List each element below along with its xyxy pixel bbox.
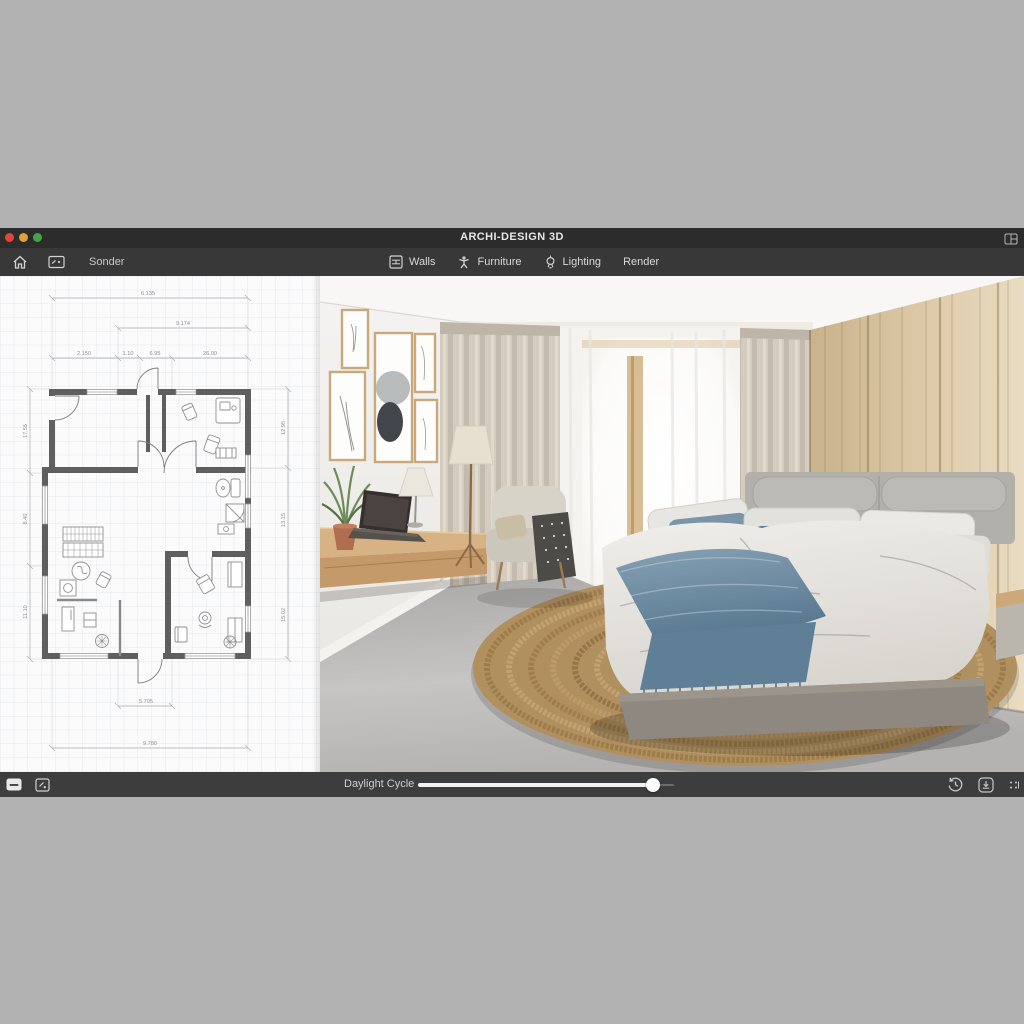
- daylight-slider[interactable]: [418, 772, 674, 797]
- project-icon[interactable]: [48, 255, 65, 269]
- svg-text:5.705: 5.705: [139, 699, 153, 705]
- snapshot-icon[interactable]: [35, 778, 50, 792]
- home-icon[interactable]: [12, 255, 28, 270]
- menu-walls[interactable]: Walls: [384, 255, 440, 269]
- menu-lighting-label: Lighting: [563, 256, 602, 268]
- svg-text:11.10: 11.10: [23, 605, 29, 619]
- menu-render[interactable]: Render: [618, 256, 664, 268]
- svg-text:6.95: 6.95: [150, 351, 161, 357]
- floor-plan-drawing: 6.135 9.174 2.150 1.10 6.95 26.00 17.55 …: [0, 276, 320, 772]
- layout-icon[interactable]: [1004, 232, 1018, 244]
- menu-render-label: Render: [623, 256, 659, 268]
- svg-text:1.10: 1.10: [123, 351, 134, 357]
- history-icon[interactable]: [947, 776, 964, 793]
- render-viewport[interactable]: [320, 276, 1024, 772]
- toolbar: Sonder Walls Furniture Lighting: [0, 248, 1024, 277]
- svg-text:12.95: 12.95: [281, 421, 287, 435]
- menu-furniture-label: Furniture: [477, 256, 521, 268]
- menu-lighting[interactable]: Lighting: [539, 255, 607, 269]
- main-menu: Walls Furniture Lighting Render: [384, 248, 664, 276]
- slider-fill: [418, 783, 653, 787]
- svg-text:26.00: 26.00: [203, 351, 217, 357]
- floor-plan-viewport[interactable]: 6.135 9.174 2.150 1.10 6.95 26.00 17.55 …: [0, 276, 320, 772]
- nightstand: [996, 589, 1024, 660]
- menu-walls-label: Walls: [409, 256, 435, 268]
- svg-text:2.150: 2.150: [77, 351, 91, 357]
- svg-text:9.174: 9.174: [176, 321, 190, 327]
- menu-furniture[interactable]: Furniture: [452, 255, 526, 269]
- panel-icon[interactable]: [6, 778, 22, 791]
- lighting-icon: [544, 255, 557, 269]
- resize-grip-icon[interactable]: [1008, 779, 1020, 791]
- title-bar: ARCHI-DESIGN 3D: [0, 228, 1024, 248]
- svg-text:13.15: 13.15: [281, 513, 287, 527]
- svg-text:8.40: 8.40: [23, 514, 29, 525]
- svg-text:6.135: 6.135: [141, 291, 155, 297]
- app-window: ARCHI-DESIGN 3D Sonder Walls: [0, 228, 1024, 797]
- bed: [590, 472, 1015, 756]
- throw-blanket: [616, 549, 826, 700]
- window-title: ARCHI-DESIGN 3D: [0, 231, 1024, 243]
- furniture-icon: [457, 255, 471, 269]
- panel-seam-shadow: [312, 276, 320, 772]
- walls-icon: [389, 255, 403, 269]
- project-name[interactable]: Sonder: [89, 256, 124, 268]
- svg-text:15.02: 15.02: [281, 608, 287, 622]
- download-icon[interactable]: [978, 777, 994, 793]
- daylight-label: Daylight Cycle: [344, 778, 414, 790]
- slider-handle[interactable]: [646, 778, 660, 792]
- svg-text:17.55: 17.55: [23, 424, 29, 438]
- svg-text:9.780: 9.780: [143, 741, 157, 747]
- render-scene: [320, 276, 1024, 772]
- status-bar: Daylight Cycle: [0, 772, 1024, 797]
